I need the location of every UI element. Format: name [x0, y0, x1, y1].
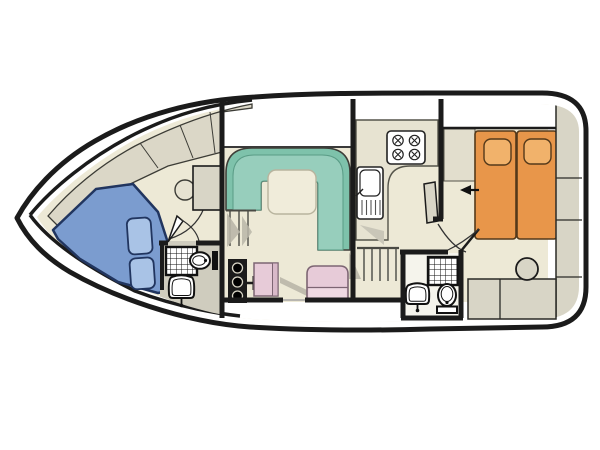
aft-wardrobe — [444, 129, 475, 181]
boat-floor-plan-image — [0, 0, 600, 450]
bench-seat-cushion — [309, 288, 347, 298]
forward-cabin-stool — [175, 180, 195, 200]
galley-sink-basin — [360, 170, 380, 196]
bench-seat — [307, 266, 348, 299]
helm-seat-backrest — [273, 263, 279, 296]
double-bed — [475, 131, 557, 239]
forward-wardrobe — [193, 166, 222, 210]
helm-console-knobs — [233, 263, 243, 301]
stove — [387, 131, 425, 164]
aft-washbasin-tap-knob — [416, 309, 420, 313]
stove-top — [387, 131, 425, 164]
forward-toilet-flush — [204, 259, 207, 262]
berth-cushion-2 — [129, 257, 155, 290]
helm-seat — [254, 263, 278, 296]
stern-cabinet-side — [556, 102, 582, 318]
forward-toilet-tank — [212, 251, 218, 270]
aft-shower — [428, 257, 458, 285]
berth-cushion-1 — [126, 217, 152, 255]
aft-toilet — [437, 284, 457, 313]
boat-floor-plan-svg — [0, 0, 600, 450]
forward-toilet — [190, 251, 218, 270]
forward-washbasin-tap-knob — [180, 304, 184, 308]
aft-toilet-tank — [437, 307, 457, 314]
aft-toilet-flush — [445, 301, 448, 304]
stool — [516, 258, 538, 280]
dinette-table — [268, 170, 316, 214]
pillow-left — [484, 139, 511, 165]
pillow-right — [524, 139, 551, 164]
galley-sink — [356, 167, 383, 219]
aft-cabinet-bottom — [468, 279, 556, 319]
